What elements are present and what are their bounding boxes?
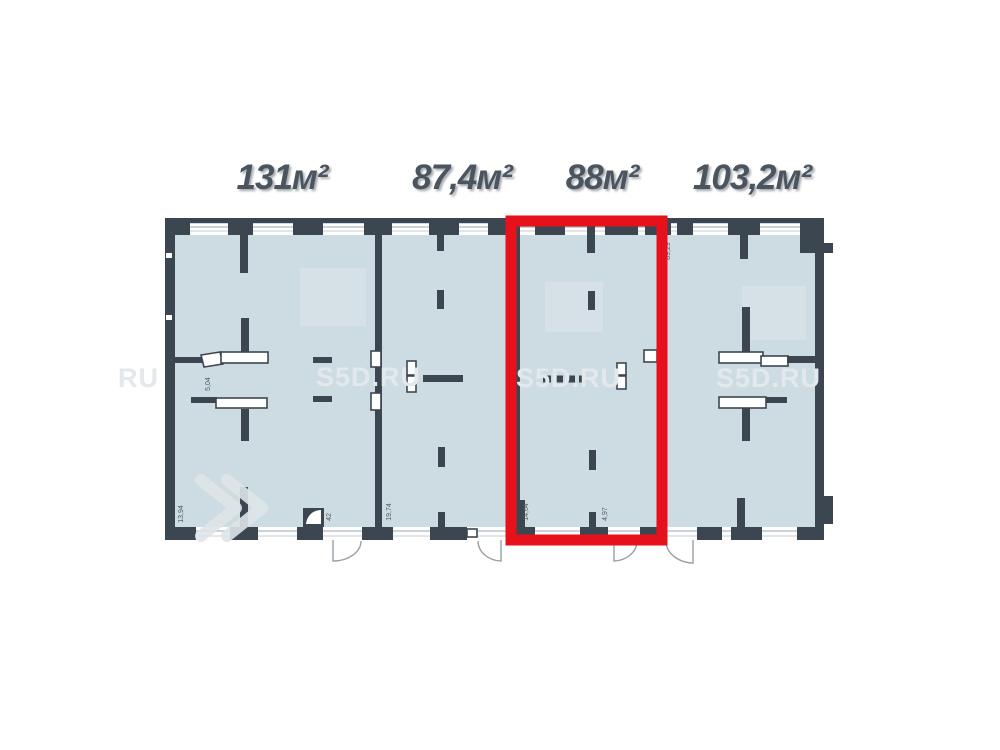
dimension-label: 14,64 xyxy=(523,503,530,521)
wall-pillar xyxy=(797,527,824,540)
wall-pillar xyxy=(677,221,693,235)
door-swing-arc xyxy=(666,540,693,563)
dimension-label: 19,74 xyxy=(386,503,393,521)
bottom-window-band xyxy=(165,527,824,540)
wall-pillar xyxy=(297,527,323,540)
wall-pillar xyxy=(697,527,722,540)
wall-pillar xyxy=(430,527,467,540)
door-swing-arc xyxy=(478,540,501,561)
dimension-label: 5,04 xyxy=(205,377,212,391)
wall-pillar xyxy=(293,221,323,235)
floor-plan-page: { "plan": { "title_watermark": "S5D.RU",… xyxy=(0,0,1000,750)
left-wall-notch xyxy=(166,315,172,320)
watermark-text: RU xyxy=(118,363,159,393)
wall-pillar xyxy=(228,221,253,235)
floor-plan-drawing: RU S5D.RU S5D.RU S5D.RU 5,04 13,94 42 19… xyxy=(0,0,1000,750)
watermark-text: S5D.RU xyxy=(716,363,821,393)
wall-pillar xyxy=(728,221,760,235)
wall-pillar xyxy=(165,221,190,235)
wall-pillar xyxy=(429,221,459,235)
watermark-text: S5D.RU xyxy=(316,362,421,392)
right-wall-jog xyxy=(824,496,833,524)
door-frame xyxy=(467,529,477,537)
watermark-text: S5D.RU xyxy=(516,363,621,393)
wall-pillar xyxy=(165,527,196,540)
left-wall xyxy=(165,218,175,540)
left-wall-notch xyxy=(166,253,172,258)
dimension-label: 42 xyxy=(326,513,333,521)
door-swing-arc xyxy=(333,540,361,561)
right-wall-jog xyxy=(824,243,833,253)
wall-pillar xyxy=(362,527,393,540)
wall-pillar xyxy=(731,527,762,540)
dimension-label: 13,94 xyxy=(178,505,185,523)
dimension-label: 4,97 xyxy=(602,507,609,521)
